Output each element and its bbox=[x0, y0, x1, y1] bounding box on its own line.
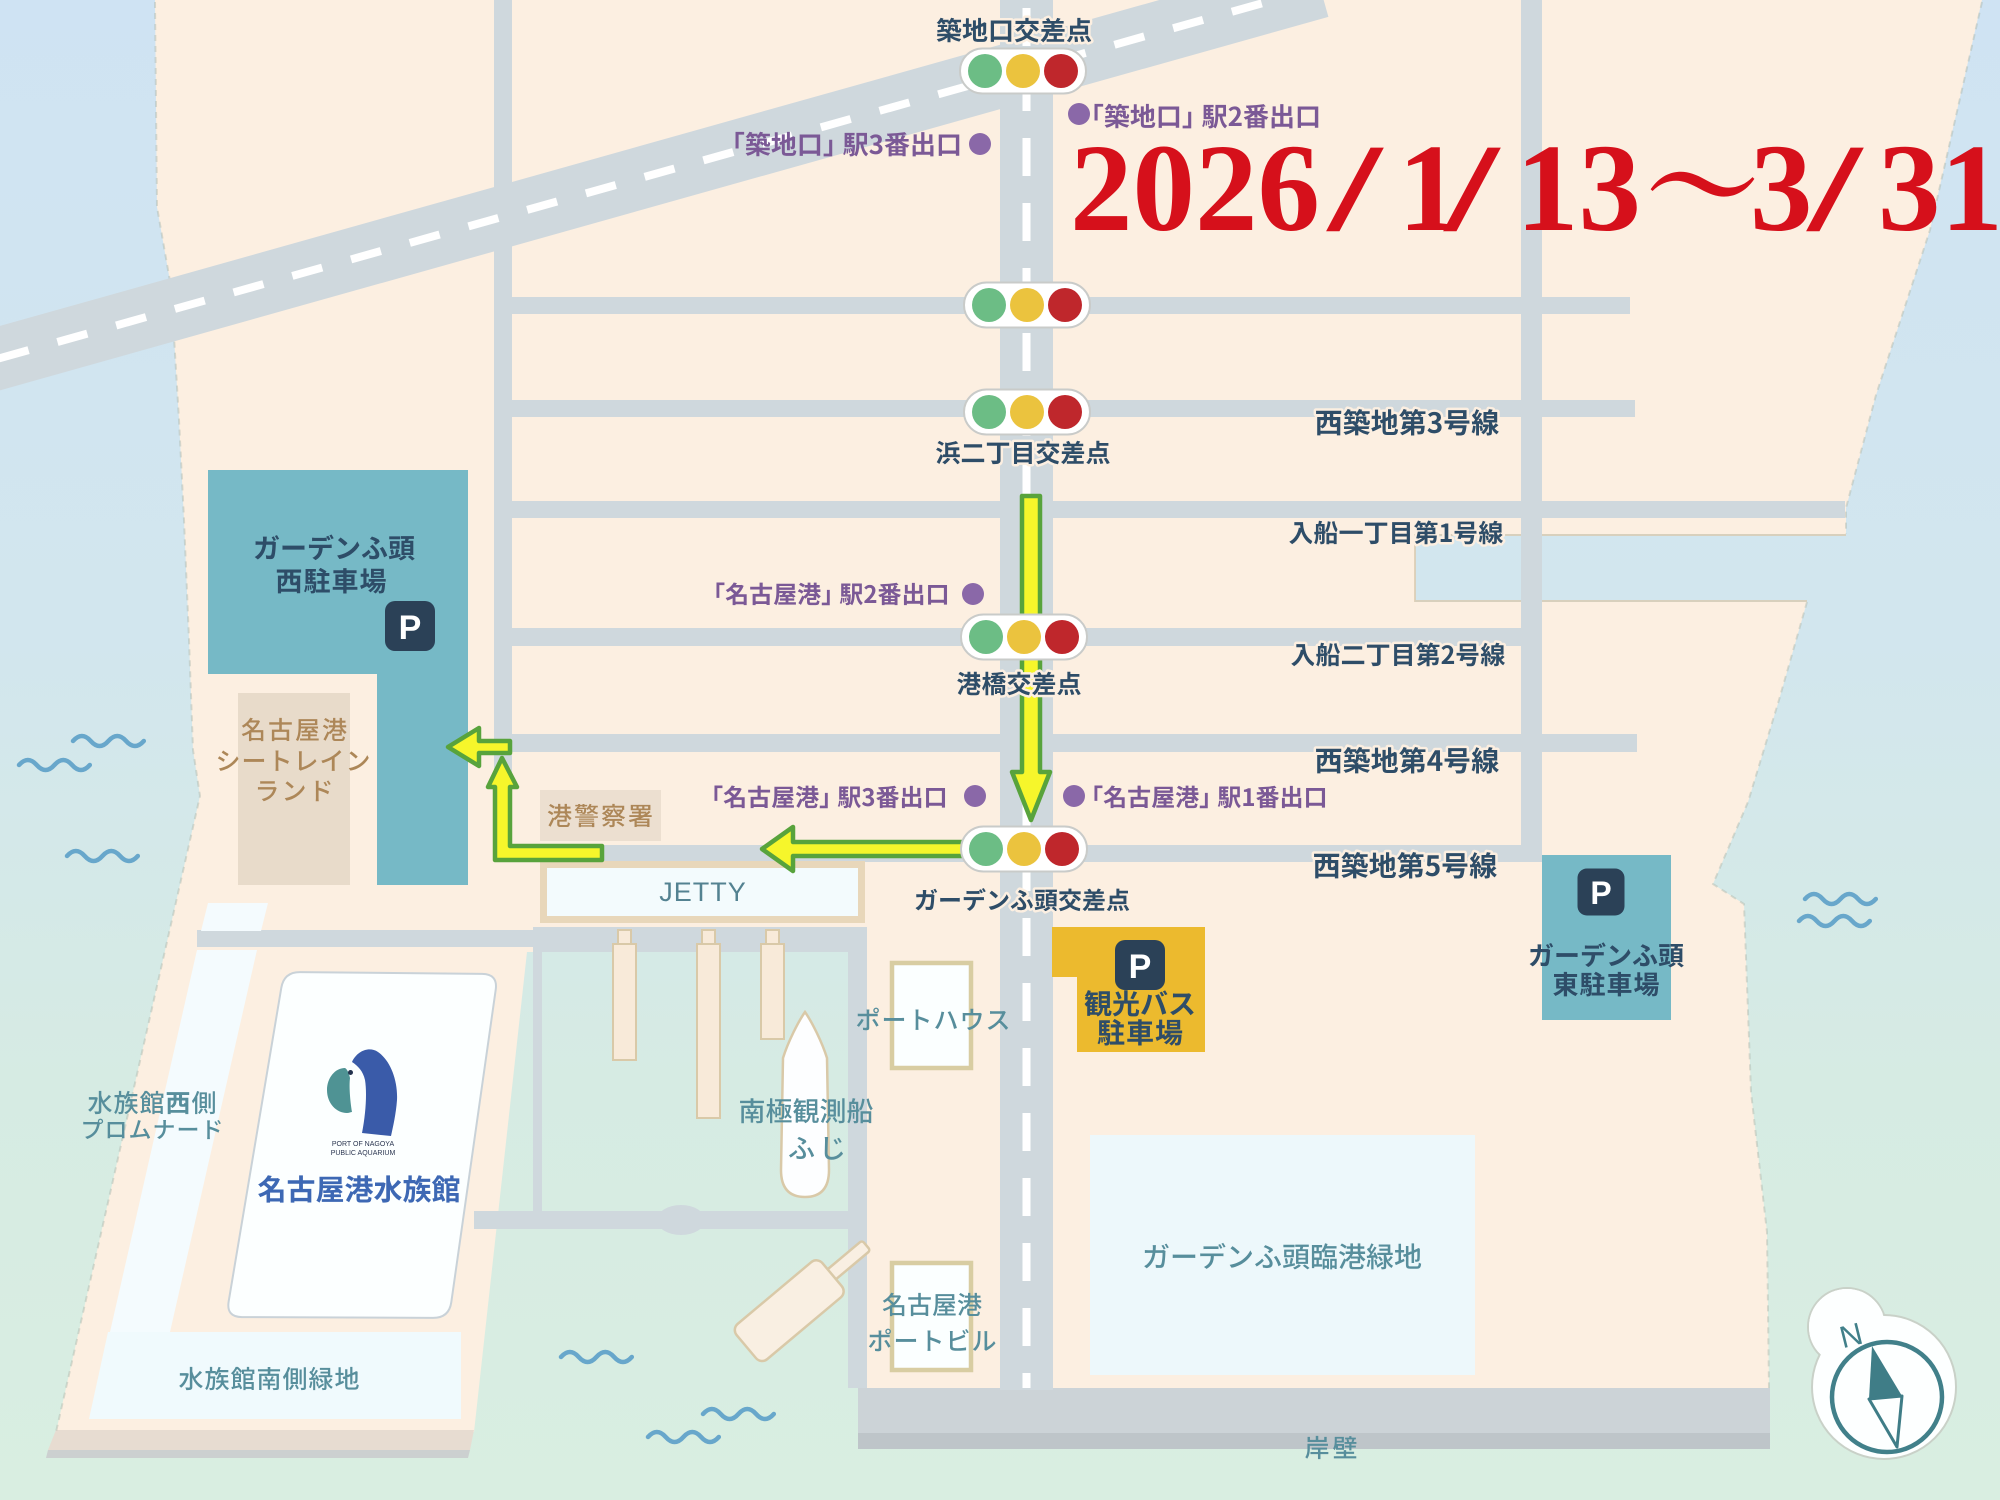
svg-text:13: 13 bbox=[1516, 120, 1641, 258]
svg-text:PUBLIC AQUARIUM: PUBLIC AQUARIUM bbox=[331, 1150, 396, 1157]
svg-text:/: / bbox=[1443, 120, 1501, 258]
svg-text:JETTY: JETTY bbox=[659, 877, 747, 907]
svg-text:2026: 2026 bbox=[1070, 120, 1320, 258]
svg-text:PORT OF NAGOYA: PORT OF NAGOYA bbox=[332, 1141, 395, 1148]
svg-text:/: / bbox=[1326, 120, 1384, 258]
svg-text:31: 31 bbox=[1878, 120, 2000, 258]
svg-text:/: / bbox=[1806, 120, 1864, 258]
svg-text:3: 3 bbox=[1750, 120, 1813, 258]
